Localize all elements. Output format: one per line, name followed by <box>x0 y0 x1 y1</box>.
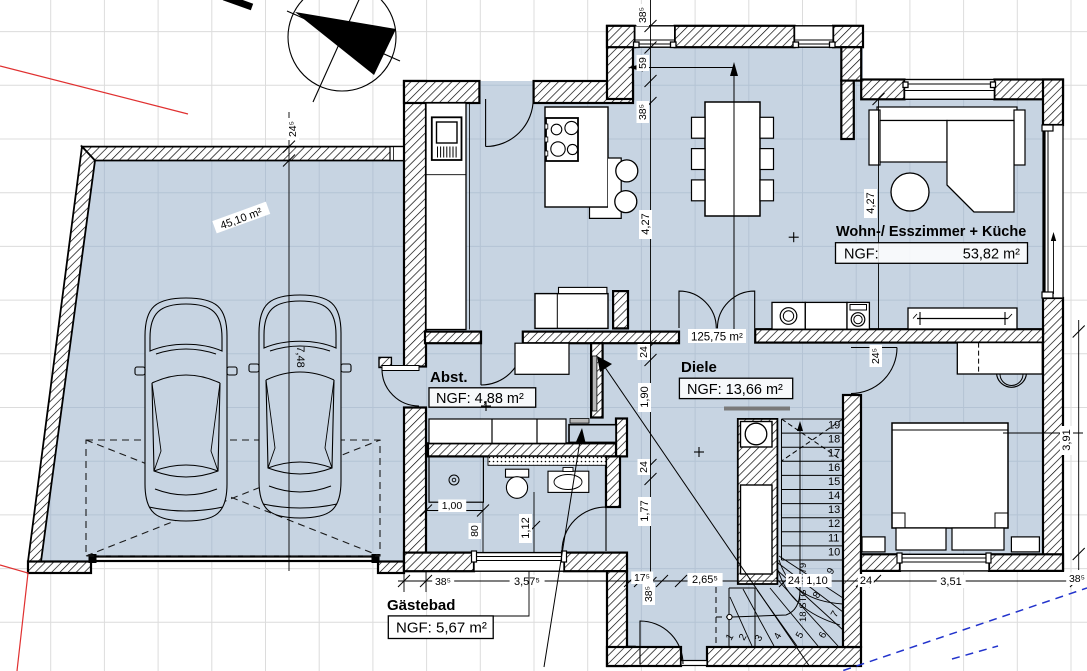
svg-text:59: 59 <box>637 57 649 69</box>
svg-text:Abst.: Abst. <box>430 369 468 386</box>
svg-text:24: 24 <box>638 346 650 358</box>
svg-text:38⁵: 38⁵ <box>637 7 649 23</box>
svg-text:1,77: 1,77 <box>639 500 651 521</box>
svg-text:1,90: 1,90 <box>639 386 651 407</box>
svg-text:NGF:: NGF: <box>844 247 879 263</box>
svg-text:24: 24 <box>788 575 800 587</box>
svg-text:4,27: 4,27 <box>640 213 652 234</box>
svg-text:Diele: Diele <box>681 359 717 376</box>
svg-text:14: 14 <box>828 490 840 502</box>
svg-text:Gästebad: Gästebad <box>387 597 455 614</box>
svg-text:19: 19 <box>828 420 840 432</box>
svg-text:13: 13 <box>828 504 840 516</box>
svg-text:Wohn-/ Esszimmer + Küche: Wohn-/ Esszimmer + Küche <box>836 224 1026 240</box>
svg-text:125,75 m²: 125,75 m² <box>691 332 743 344</box>
svg-text:80: 80 <box>469 525 481 537</box>
svg-text:24⁵: 24⁵ <box>287 121 299 137</box>
svg-text:38⁵: 38⁵ <box>643 586 655 602</box>
svg-text:NGF: 5,67 m²: NGF: 5,67 m² <box>396 620 487 637</box>
svg-text:3,57⁵: 3,57⁵ <box>514 576 540 588</box>
svg-text:1,10: 1,10 <box>806 575 827 587</box>
svg-text:15: 15 <box>828 476 840 488</box>
svg-text:18: 18 <box>828 434 840 446</box>
svg-text:NGF: 4,88 m²: NGF: 4,88 m² <box>436 391 524 407</box>
svg-text:38⁵: 38⁵ <box>1069 573 1085 585</box>
svg-text:12: 12 <box>828 518 840 530</box>
svg-text:38⁵: 38⁵ <box>637 104 649 120</box>
svg-text:11: 11 <box>828 532 839 544</box>
svg-text:24: 24 <box>638 461 650 473</box>
svg-text:1,12: 1,12 <box>520 517 532 538</box>
svg-text:3,51: 3,51 <box>940 576 961 588</box>
svg-text:53,82 m²: 53,82 m² <box>963 247 1020 263</box>
svg-text:17⁵: 17⁵ <box>634 572 650 584</box>
svg-text:NGF: 13,66 m²: NGF: 13,66 m² <box>687 382 783 398</box>
svg-text:4,27: 4,27 <box>865 192 877 213</box>
svg-text:3,91: 3,91 <box>1061 429 1073 450</box>
svg-text:18 STG 17/79: 18 STG 17/79 <box>798 563 809 622</box>
svg-text:16: 16 <box>828 462 840 474</box>
svg-text:7,48: 7,48 <box>294 346 306 367</box>
svg-text:2,65⁵: 2,65⁵ <box>692 574 718 586</box>
svg-text:38⁵: 38⁵ <box>435 576 451 588</box>
svg-text:24⁵: 24⁵ <box>870 348 882 364</box>
svg-text:10: 10 <box>828 546 840 558</box>
svg-text:17: 17 <box>828 448 840 460</box>
svg-text:1,00: 1,00 <box>442 500 463 512</box>
svg-text:24: 24 <box>860 575 872 587</box>
